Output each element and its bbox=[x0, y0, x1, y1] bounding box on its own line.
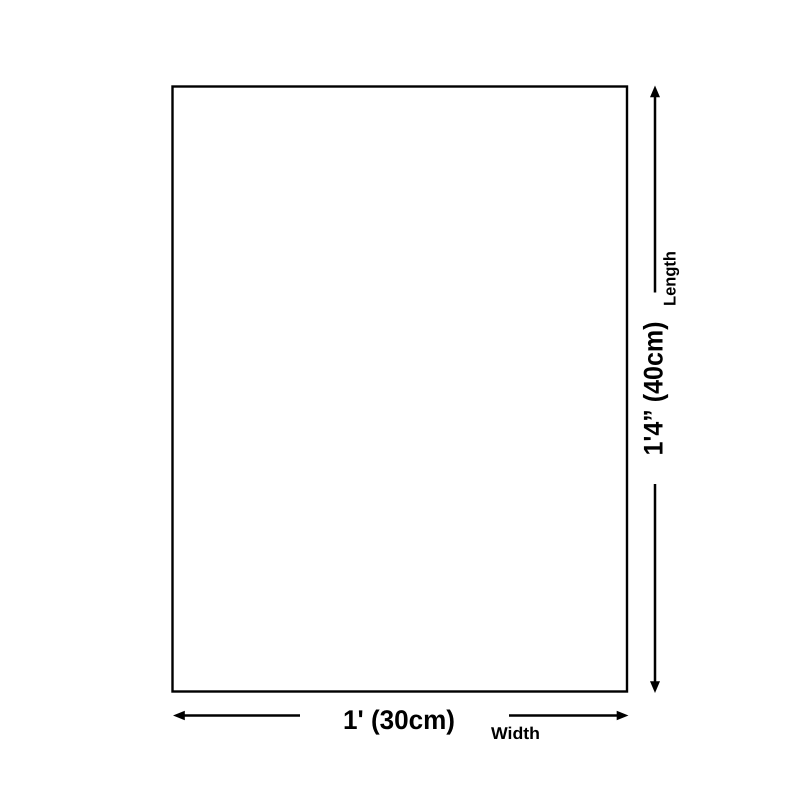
svg-text:Length: Length bbox=[661, 251, 680, 306]
svg-text:1' (30cm): 1' (30cm) bbox=[343, 705, 455, 735]
svg-text:1'4” (40cm): 1'4” (40cm) bbox=[639, 322, 669, 456]
svg-text:Width: Width bbox=[491, 724, 540, 743]
